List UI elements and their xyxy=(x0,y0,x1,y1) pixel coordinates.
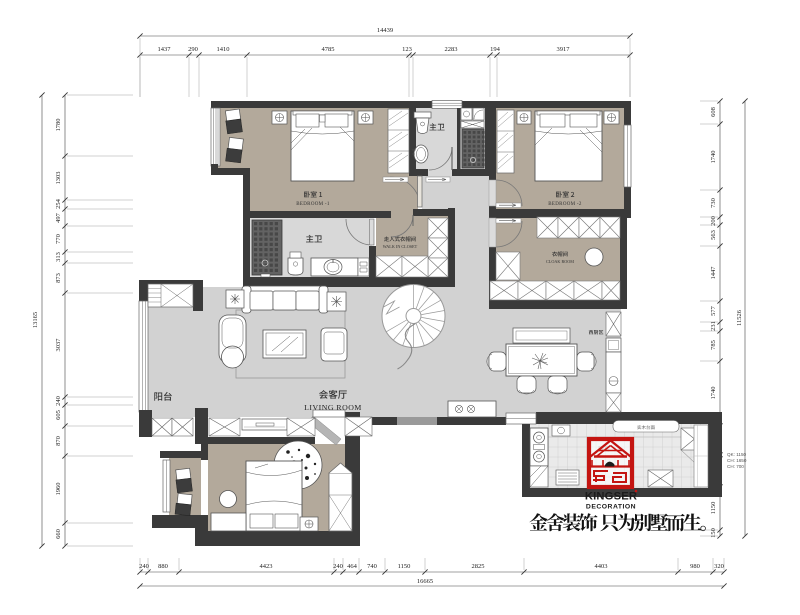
svg-text:563: 563 xyxy=(710,230,717,240)
svg-text:605: 605 xyxy=(55,410,62,420)
svg-text:1960: 1960 xyxy=(55,483,62,496)
svg-text:1740: 1740 xyxy=(710,151,717,164)
svg-text:2283: 2283 xyxy=(445,46,458,53)
svg-text:577: 577 xyxy=(710,305,717,316)
svg-text:194: 194 xyxy=(490,46,501,53)
svg-text:150: 150 xyxy=(710,528,717,538)
svg-text:1780: 1780 xyxy=(55,119,62,132)
svg-text:770: 770 xyxy=(55,234,62,244)
svg-text:QK: 1150: QK: 1150 xyxy=(727,452,747,457)
svg-text:CLOAK ROOM: CLOAK ROOM xyxy=(546,259,574,264)
svg-text:240: 240 xyxy=(333,563,343,570)
svg-text:464: 464 xyxy=(347,563,358,570)
svg-text:1437: 1437 xyxy=(158,46,172,53)
svg-text:1150: 1150 xyxy=(398,563,411,570)
svg-text:290: 290 xyxy=(188,46,198,53)
svg-text:CH: 700: CH: 700 xyxy=(727,464,744,469)
svg-text:240: 240 xyxy=(139,563,149,570)
svg-text:3917: 3917 xyxy=(557,46,571,53)
svg-text:1447: 1447 xyxy=(710,266,717,280)
svg-text:13165: 13165 xyxy=(32,312,39,328)
svg-text:4403: 4403 xyxy=(595,563,608,570)
svg-text:240: 240 xyxy=(55,396,62,406)
svg-text:200: 200 xyxy=(710,216,717,226)
svg-text:123: 123 xyxy=(402,46,412,53)
svg-text:DECORATION: DECORATION xyxy=(586,504,636,511)
svg-text:KINGSER: KINGSER xyxy=(585,491,637,503)
svg-text:231: 231 xyxy=(710,321,717,331)
svg-text:BEDROOM -2: BEDROOM -2 xyxy=(548,202,582,207)
svg-text:660: 660 xyxy=(55,529,62,539)
svg-text:870: 870 xyxy=(55,436,62,446)
svg-text:313: 313 xyxy=(55,252,62,262)
svg-text:785: 785 xyxy=(710,340,717,350)
svg-text:CH: 1650: CH: 1650 xyxy=(727,458,747,463)
svg-text:873: 873 xyxy=(55,273,62,283)
svg-text:2825: 2825 xyxy=(472,563,485,570)
svg-text:740: 740 xyxy=(367,563,377,570)
svg-text:3037: 3037 xyxy=(55,338,62,352)
svg-text:254: 254 xyxy=(55,198,62,209)
svg-text:320: 320 xyxy=(714,563,724,570)
svg-text:1410: 1410 xyxy=(217,46,230,53)
svg-text:1150: 1150 xyxy=(710,502,717,515)
svg-text:16665: 16665 xyxy=(417,578,433,585)
svg-text:1303: 1303 xyxy=(55,172,62,185)
svg-text:14439: 14439 xyxy=(377,27,393,34)
svg-text:4785: 4785 xyxy=(322,46,335,53)
svg-text:BEDROOM -1: BEDROOM -1 xyxy=(296,202,330,207)
svg-text:980: 980 xyxy=(690,563,700,570)
svg-text:608: 608 xyxy=(710,107,717,117)
svg-text:1740: 1740 xyxy=(710,387,717,400)
svg-text:497: 497 xyxy=(55,212,62,223)
svg-text:4423: 4423 xyxy=(260,563,273,570)
svg-text:880: 880 xyxy=(158,563,168,570)
svg-text:LIVING ROOM: LIVING ROOM xyxy=(304,403,362,412)
svg-text:WALK IN CLOSET: WALK IN CLOSET xyxy=(383,244,418,249)
svg-text:730: 730 xyxy=(710,198,717,208)
svg-text:11526: 11526 xyxy=(736,309,743,326)
